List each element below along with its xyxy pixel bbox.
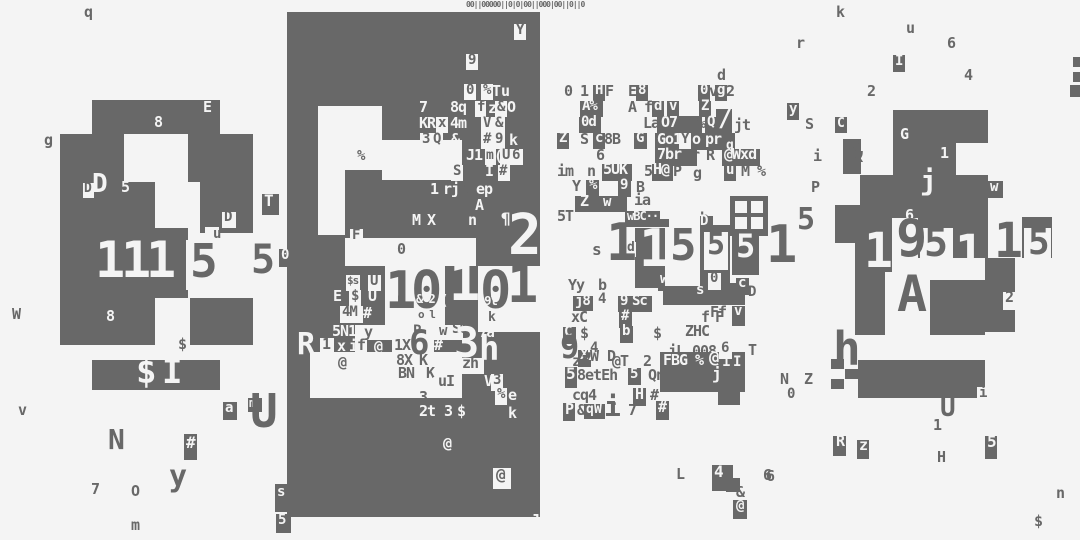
glyph: 6 [721,341,728,355]
glyph: j [920,167,936,195]
glyph: i [349,339,357,354]
glyph: @ [443,436,451,451]
glyph: 9 [620,178,627,192]
glyph: g [44,133,52,148]
glyph: 8 [154,115,162,130]
glyph: U [940,395,955,421]
glyph: i [813,149,821,164]
glyph: I [485,164,493,179]
glyph: i [979,386,986,400]
glyph: J1 [466,148,482,163]
glyph: y [789,102,796,116]
glyph: @Wxd [724,147,756,162]
glyph: 7 [419,100,427,115]
glyph: Yy [568,278,584,293]
glyph: u [501,84,509,99]
glyph: (9l [478,295,497,307]
glyph: h [479,332,498,366]
glyph: 5T [557,209,573,224]
glyph: 3 [493,373,500,387]
glyph: 4m [450,116,466,131]
glyph: N [108,426,124,454]
glyph: S [805,117,813,132]
dark-block [188,134,253,182]
glyph: H [937,450,945,465]
glyph: / [718,106,731,130]
glyph: $ [461,182,468,196]
light-block [735,201,747,213]
glyph: pr [705,132,721,147]
glyph: d [654,99,661,113]
glyph: W [590,349,598,364]
glyph: 6 [766,469,774,484]
glyph: j [712,366,721,382]
glyph: 8 [638,83,645,97]
glyph: 4M [342,305,357,319]
glyph: o l [418,309,435,320]
glyph: n [1056,486,1064,501]
glyph: $ [136,355,155,389]
glyph: h [833,326,860,372]
glyph: 2 [726,84,734,99]
glyph: b [397,295,405,310]
glyph: 1 [146,235,175,285]
glyph: 9 [468,53,475,67]
glyph: 9 [620,294,627,308]
glyph: 7 [91,482,99,497]
glyph: & [577,403,585,418]
glyph: S [453,164,460,178]
glyph: FBG [663,353,687,368]
glyph: ia [634,193,650,208]
glyph: 0 [700,83,707,97]
glyph: f [477,100,484,114]
glyph: D [748,285,755,299]
glyph: y [364,325,372,340]
glyph: H [595,83,602,97]
glyph: w [990,180,997,194]
glyph: s [277,485,284,499]
glyph: 1 [994,217,1022,265]
glyph: E [203,100,211,115]
glyph: Q [433,132,440,146]
glyph: e [508,388,516,403]
glyph: V [483,116,490,130]
glyph: uI [438,374,454,389]
light-block [660,207,673,219]
glyph: F [605,84,613,99]
glyph: D [700,214,707,228]
glyph: 5 [797,205,814,235]
glyph: 0 [397,242,405,257]
glyph: U [426,164,434,179]
glyph: P [565,402,573,417]
glyph: R [706,148,714,163]
glyph: Sc [632,294,647,308]
glyph: 5 [924,223,947,263]
glyph: V [484,374,492,389]
glyph: r [691,148,699,163]
glyph: 4 [714,464,723,480]
glyph: c [595,131,602,145]
glyph: % [483,83,490,97]
glyph: $s [347,275,358,286]
glyph: t [293,274,301,289]
glyph: m [486,149,493,162]
glyph: u [906,21,914,36]
glyph: S [492,198,499,212]
glyph: g [717,83,724,97]
glyph: T [264,193,273,209]
glyph: @ [736,499,743,513]
glyph: D [84,182,91,195]
glyph: u [213,227,220,241]
glyph: W [12,307,20,322]
glyph: b [622,324,629,338]
glyph: I [162,355,181,389]
glyph: ep [476,182,492,197]
glyph: 4 [598,292,605,306]
glyph: 6 [512,148,519,162]
glyph: % [589,178,596,192]
glyph: 5 [566,366,575,382]
glyph: P [811,180,819,195]
glyph: 8B [604,132,620,147]
glyph: # [621,309,628,323]
glyph: 1 [95,235,124,285]
glyph: 2 [443,164,451,179]
glyph: n [468,213,476,228]
glyph: C [837,117,844,130]
glyph: 5 [670,224,696,268]
glyph: ZHC [685,324,709,339]
glyph: 00||00000||0|0|00||000|00||0||0 [466,1,584,9]
glyph: Y [516,23,523,37]
glyph: T [492,84,500,99]
glyph: & 2 [416,293,435,305]
glyph: U [368,289,376,304]
glyph: BN [398,366,414,381]
glyph: 7 [628,403,636,418]
glyph: 0 [710,271,717,285]
glyph: u [726,163,733,177]
glyph: im [557,164,573,179]
glyph: X [427,213,435,228]
glyph: G [636,131,643,145]
glyph: M [741,164,749,179]
glyph: 6 [947,36,955,51]
glyph: 1 [449,257,479,309]
glyph: 5UK [603,162,627,177]
glyph: 5 [707,230,724,260]
glyph: E [628,84,636,99]
glyph: 8 [106,309,114,324]
glyph: 9 [896,213,926,265]
dark-block [930,280,985,335]
glyph: R [836,434,844,449]
glyph: A [475,198,483,213]
glyph: 5 [190,238,217,284]
glyph: k [836,5,844,20]
glyph: 1 [955,229,983,277]
glyph: 5 [278,513,285,527]
glyph: 5 [736,230,754,262]
glyph: H [635,387,643,402]
glyph: y [169,462,186,492]
glyph: v [734,304,741,318]
glyph: # [650,388,658,403]
glyph: # [483,132,490,146]
glyph: 1 [766,219,796,271]
dark-block [1073,57,1080,67]
glyph: k [508,406,516,421]
glyph: 5 [630,367,637,381]
glyph: $ [457,404,465,419]
glyph: Z [701,99,708,113]
glyph: A% [582,99,597,113]
glyph: O [131,484,139,499]
glyph: w [603,195,610,209]
glyph: U [250,388,277,434]
glyph: T [748,343,756,358]
glyph: 1 [507,259,537,311]
glyph: @ [496,467,505,483]
glyph: f [357,338,365,353]
glyph: F [352,228,359,242]
glyph: # [186,435,195,451]
glyph: I [733,355,740,369]
glyph: k [488,311,495,324]
glyph: 1 [580,84,588,99]
glyph: q [84,5,92,20]
dark-block [663,283,745,305]
glyph: & [451,132,459,147]
glyph: 0 [564,84,572,99]
glyph: G [900,127,908,142]
glyph: A [628,100,636,115]
light-block [318,170,345,235]
dark-block [831,379,844,389]
glyph: x [438,116,445,130]
glyph: 6 [349,354,356,368]
glyph: % [757,164,765,179]
glyph: 8etEh [577,368,617,383]
glyph: M [412,213,420,228]
glyph: rj [443,182,459,197]
glyph: 1 [864,227,892,275]
glyph: 8q [450,100,466,115]
glyph: s [592,242,601,258]
glyph: N [780,372,788,387]
glyph: % [497,387,504,401]
glyph: % [695,353,703,368]
glyph: D [224,210,231,224]
glyph: Q [707,115,714,129]
glyph: k [509,133,517,148]
glyph: 1 [722,355,729,369]
glyph: d [717,68,725,83]
glyph: Z [580,194,588,209]
glyph: 0 [466,83,473,97]
glyph: $ [653,326,661,341]
glyph: KR [419,116,435,131]
glyph: U [370,274,377,288]
glyph: ( [494,149,502,164]
glyph: z [488,101,496,116]
glyph: 5 [121,180,129,195]
glyph: 5 [644,164,652,179]
glyph: m [131,518,139,533]
dark-block [1070,85,1080,97]
glyph: % [697,116,705,131]
light-block [318,106,382,170]
glyph: 1 [430,182,438,197]
glyph: 2t [419,404,435,419]
dark-block [60,182,155,232]
glyph: & [495,116,502,130]
glyph: 4 [964,68,972,83]
glyph: o [436,515,444,530]
glyph: Y [681,132,688,146]
dark-block [92,360,220,390]
glyph: 5 [987,434,996,450]
glyph: # [434,338,442,353]
glyph: P [673,164,681,179]
glyph: 0 [787,387,794,401]
glyph: 1 [322,337,330,352]
glyph: & [497,100,504,114]
glyph: I [895,54,902,68]
glyph: o [692,132,700,147]
glyph: 1 [933,418,941,433]
glyph: ( [440,294,447,308]
glyph: # [658,400,666,415]
glyph: % [357,149,364,163]
glyph: S [580,132,588,147]
glyph: Z [804,372,812,387]
glyph: 1 [639,223,669,275]
glyph: x [428,374,435,388]
glyph: 9 [684,116,692,131]
glyph: c [738,276,745,290]
glyph: $ [351,289,358,303]
glyph: w [660,272,667,286]
dark-block [1073,72,1080,82]
glyph: 3 [444,404,452,419]
glyph: v [709,84,717,99]
glyph: L [676,467,684,482]
glyph: Y [572,179,580,194]
glyph: O7 [661,115,677,130]
glyph: z [859,438,867,453]
glyph: A [897,269,926,319]
glyph: # [499,164,506,178]
glyph: K [306,275,314,290]
glyph: 0 [480,265,510,317]
glyph: $ [178,337,186,352]
glyph: $ [1034,514,1042,529]
glyph: 5 [1028,225,1049,261]
glyph: 3 [422,132,429,146]
glyph: 2 [867,84,875,99]
glyph: J [531,513,539,528]
glyph: U [502,148,509,162]
glyph: R [297,330,314,360]
glyph: xC [571,310,587,325]
glyph: @ [338,355,346,370]
glyph: 2 [1005,290,1013,305]
glyph: 1 [940,146,948,161]
glyph: v [669,99,676,113]
glyph: 9 [495,132,502,146]
glyph: 5 [224,253,240,281]
glyph: @ [374,339,382,354]
glyph: 1 [338,383,345,397]
glyph: g [693,166,701,181]
glyph: j8 [575,294,590,308]
glyph: zh [462,356,478,371]
glyph: W [594,403,601,416]
glyph: f [644,100,652,115]
glyph: d [627,241,634,254]
glyph: H@ [653,162,669,177]
glyph: Qn [648,368,664,383]
glyph: q [586,403,593,416]
glyph: x [337,339,345,354]
glyph: # [363,306,371,321]
glyph: La [643,116,659,131]
glyph: s [696,283,703,297]
glyph: 5 [251,240,274,280]
glyph: Z [559,131,566,145]
glyph: a [225,401,232,415]
glyph: v [18,403,26,418]
art-canvas: qgkur642SiPWv7Omn$IyCT0ams#16&E8DD511155… [0,0,1080,540]
glyph: r [796,36,804,51]
glyph: D [92,171,107,197]
glyph: Ff [710,305,726,320]
dark-block [858,360,985,398]
glyph: O [507,100,515,115]
glyph: 0d [581,115,596,129]
glyph: jt [734,118,750,133]
light-block [751,201,763,213]
glyph: i [604,393,620,421]
glyph: 0 [281,248,288,262]
dark-block [190,298,253,345]
glyph: & [845,138,862,168]
glyph: 0 [451,148,459,163]
